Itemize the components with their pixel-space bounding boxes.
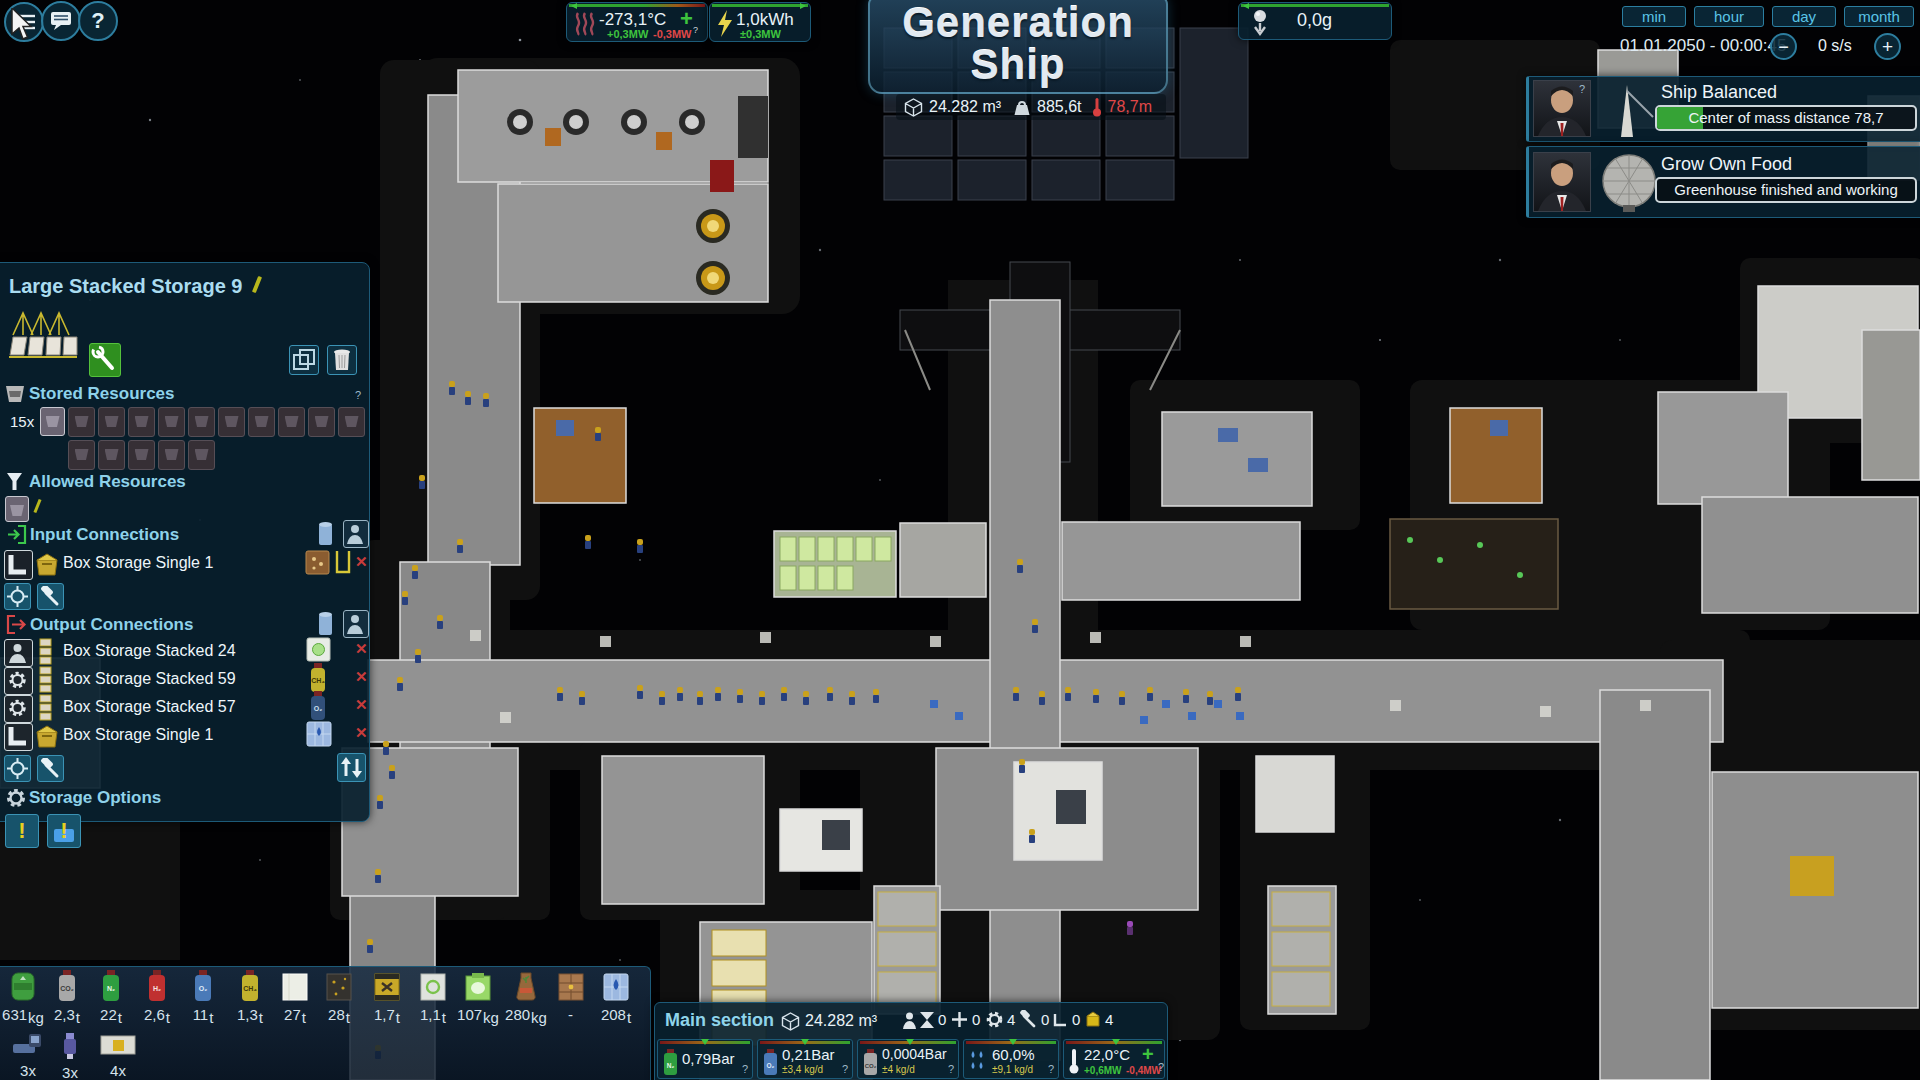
counter-crew: 0 bbox=[938, 1011, 946, 1028]
chat-icon bbox=[50, 11, 72, 31]
storage-slot[interactable] bbox=[158, 407, 185, 437]
stored-resources-header: Stored Resources bbox=[29, 384, 175, 404]
env-value: 60,0% bbox=[992, 1046, 1035, 1063]
resource-ch4[interactable]: CH₄ 1,3t bbox=[227, 970, 273, 1026]
speed-decrease-button[interactable]: − bbox=[1770, 33, 1797, 60]
resource-biomass[interactable]: 107kg bbox=[455, 970, 501, 1026]
storage-box-icon bbox=[1085, 1010, 1101, 1027]
pipe-cylinder-icon[interactable] bbox=[318, 521, 333, 547]
n2-bottle-icon: N₂ bbox=[662, 1049, 679, 1076]
notification-title: Grow Own Food bbox=[1661, 154, 1792, 175]
resource-unit: t bbox=[118, 1009, 122, 1026]
section-volume: 24.282 m³ bbox=[805, 1012, 877, 1030]
center-of-mass-progress: Center of mass distance 78,7 bbox=[1655, 105, 1917, 131]
resource-unit: t bbox=[346, 1009, 350, 1026]
minus-icon: − bbox=[1778, 38, 1789, 56]
storage-slot[interactable] bbox=[188, 440, 215, 470]
machine-count: 4x bbox=[94, 1062, 142, 1079]
output-connection-label[interactable]: Box Storage Stacked 24 bbox=[63, 642, 236, 660]
hammer-icon bbox=[1019, 1010, 1037, 1028]
env-co2-panel[interactable]: CO₂ 0,0004Bar ±4 kg/d ? bbox=[857, 1039, 959, 1079]
exclamation-icon: ! bbox=[60, 818, 67, 844]
storage-slot[interactable] bbox=[188, 407, 215, 437]
resource-unit: t bbox=[627, 1009, 631, 1026]
resource-amount: 22 bbox=[100, 1006, 117, 1023]
storage-detail-panel: Large Stacked Storage 9 Stored Resources… bbox=[0, 262, 370, 822]
machine-count-workstation[interactable]: 3x bbox=[6, 1032, 50, 1079]
main-section-panel: Main section 24.282 m³ 0 0 4 0 0 4 N₂ 0,… bbox=[654, 1002, 1168, 1080]
resource-amount: 1,3 bbox=[237, 1006, 258, 1023]
stacked-storage-mini-icon bbox=[38, 666, 53, 693]
plus-icon: + bbox=[1882, 37, 1893, 56]
gear-icon bbox=[985, 1010, 1004, 1029]
storage-options-header: Storage Options bbox=[29, 788, 161, 808]
env-gauge bbox=[760, 1041, 850, 1044]
bottle-label: H₂ bbox=[153, 985, 161, 992]
length-thermometer-icon bbox=[1092, 97, 1102, 117]
resource-co2[interactable]: CO₂ 2,3t bbox=[44, 970, 90, 1026]
volume-cube-icon bbox=[781, 1012, 800, 1031]
machine-count: 3x bbox=[52, 1064, 88, 1080]
env-delta: ±4 kg/d bbox=[882, 1064, 915, 1075]
machine-count-fabricator[interactable]: 4x bbox=[94, 1032, 142, 1079]
env-loss: -0,4MW bbox=[1126, 1065, 1161, 1076]
resource-ore[interactable]: 28t bbox=[316, 970, 362, 1026]
counter-corner: 0 bbox=[1072, 1011, 1080, 1028]
output-connections-icon bbox=[6, 614, 28, 635]
storage-slot[interactable] bbox=[68, 407, 95, 437]
bottle-label: CO₂ bbox=[60, 985, 74, 992]
mass-weight-icon bbox=[1013, 98, 1031, 117]
stacked-storage-mini-icon bbox=[38, 694, 53, 721]
energy-bolt-icon bbox=[716, 10, 734, 38]
output-connection-label[interactable]: Box Storage Stacked 57 bbox=[63, 698, 236, 716]
resource-amount: 208 bbox=[601, 1006, 626, 1023]
allowed-resources-header: Allowed Resources bbox=[29, 472, 186, 492]
resource-filter-icon[interactable] bbox=[305, 550, 330, 575]
machine-count: 3x bbox=[6, 1062, 50, 1079]
corner-icon bbox=[1053, 1012, 1068, 1027]
resource-amount: 11 bbox=[193, 1006, 209, 1023]
crew-carry-toggle[interactable] bbox=[343, 520, 369, 548]
resource-crate[interactable]: - bbox=[548, 970, 594, 1026]
output-row-type-icon[interactable] bbox=[4, 723, 33, 751]
allowed-resources-slot[interactable] bbox=[5, 496, 29, 522]
remove-output-connection[interactable]: ✕ bbox=[355, 668, 368, 686]
remove-output-connection[interactable]: ✕ bbox=[355, 696, 368, 714]
output-connection-label[interactable]: Box Storage Single 1 bbox=[63, 726, 213, 744]
storage-slot[interactable] bbox=[128, 407, 155, 437]
stored-count: 15x bbox=[10, 413, 34, 430]
rename-pencil-icon[interactable] bbox=[252, 276, 262, 293]
env-humidity-panel[interactable]: 60,0% ±9,1 kg/d ? bbox=[963, 1039, 1059, 1079]
add-connection-hammer-button[interactable] bbox=[37, 583, 64, 610]
deconstruct-button[interactable] bbox=[327, 345, 357, 375]
input-connections-icon bbox=[6, 524, 28, 545]
energy-gauge bbox=[712, 4, 808, 7]
notification-grow-own-food[interactable]: Grow Own Food Greenhouse finished and wo… bbox=[1526, 146, 1920, 218]
greenhouse-dome-icon bbox=[1599, 151, 1659, 213]
output-row-type-icon[interactable] bbox=[4, 667, 33, 695]
stored-slot-row1 bbox=[68, 407, 365, 437]
env-gauge bbox=[966, 1041, 1056, 1044]
allowed-edit-pencil-icon[interactable] bbox=[33, 499, 41, 513]
bottle-label: O₂ bbox=[199, 985, 208, 992]
storage-panel-title: Large Stacked Storage 9 bbox=[9, 275, 242, 298]
resource-amount: 107 bbox=[457, 1006, 482, 1023]
storage-slot[interactable] bbox=[308, 407, 335, 437]
copy-icon bbox=[293, 349, 315, 371]
temperature-gain: +0,3MW bbox=[607, 28, 648, 40]
ship-title-line2: Ship bbox=[870, 44, 1166, 86]
env-o2-panel[interactable]: O₂ 0,21Bar ±3,4 kg/d ? bbox=[757, 1039, 853, 1079]
resource-amount: 1,7 bbox=[374, 1006, 395, 1023]
storage-slot[interactable] bbox=[158, 440, 185, 470]
notification-detail: Center of mass distance 78,7 bbox=[1688, 109, 1883, 126]
env-value: 0,79Bar bbox=[682, 1050, 735, 1067]
svg-text:N₂: N₂ bbox=[667, 1062, 675, 1069]
resource-amount: - bbox=[568, 1006, 573, 1023]
greenhouse-progress: Greenhouse finished and working bbox=[1655, 177, 1917, 203]
output-row-type-icon[interactable] bbox=[4, 695, 33, 723]
storage-options-gear-icon bbox=[5, 787, 27, 809]
mass-cone-icon bbox=[1599, 81, 1655, 139]
trash-icon bbox=[333, 349, 351, 371]
output-connections-header: Output Connections bbox=[30, 615, 193, 635]
exclamation-icon: ! bbox=[18, 818, 25, 844]
output-connection-label[interactable]: Box Storage Stacked 59 bbox=[63, 670, 236, 688]
remove-output-connection[interactable]: ✕ bbox=[355, 724, 368, 742]
resource-unit: t bbox=[302, 1009, 306, 1026]
env-delta: ±9,1 kg/d bbox=[992, 1064, 1033, 1075]
o2-bottle-icon: O₂ bbox=[762, 1049, 779, 1076]
time-skip-min-button[interactable]: min bbox=[1622, 6, 1686, 27]
resource-amount: 1,1 bbox=[420, 1006, 441, 1023]
resource-food[interactable]: 631kg bbox=[0, 970, 46, 1026]
resource-amount: 28 bbox=[328, 1006, 345, 1023]
crate-thumb-icon bbox=[35, 724, 59, 748]
env-gain: +0,6MW bbox=[1084, 1065, 1122, 1076]
locate-target-button[interactable] bbox=[4, 583, 31, 610]
counter-cross: 0 bbox=[972, 1011, 980, 1028]
resource-amount: 2,6 bbox=[144, 1006, 165, 1023]
resource-amount: 631 bbox=[2, 1006, 27, 1023]
notification-detail: Greenhouse finished and working bbox=[1674, 181, 1897, 198]
storage-slot[interactable] bbox=[98, 407, 125, 437]
env-q: ? bbox=[1158, 1061, 1164, 1073]
notification-ship-balanced[interactable]: ? Ship Balanced Center of mass distance … bbox=[1526, 76, 1920, 142]
resource-unit: t bbox=[166, 1009, 170, 1026]
env-plus[interactable]: + bbox=[1142, 1043, 1154, 1066]
volume-cube-icon bbox=[904, 98, 923, 117]
resource-unit: t bbox=[396, 1009, 400, 1026]
ship-title-panel: Generation Ship bbox=[868, 0, 1168, 94]
storage-slot[interactable] bbox=[98, 440, 125, 470]
resource-unit: t bbox=[209, 1009, 213, 1026]
notification-q: ? bbox=[1579, 83, 1585, 95]
env-q: ? bbox=[842, 1063, 848, 1075]
ship-temperature-panel[interactable]: -273,1°C + +0,3MW -0,3MW ? bbox=[566, 2, 708, 42]
resource-unit: t bbox=[442, 1009, 446, 1026]
resource-filter-icon[interactable]: O₂ bbox=[309, 691, 327, 721]
humidity-drops-icon bbox=[968, 1049, 988, 1075]
resource-water-ice[interactable]: 208t bbox=[593, 970, 639, 1026]
stored-slot-row2 bbox=[68, 440, 215, 470]
input-connections-header: Input Connections bbox=[30, 525, 179, 545]
sort-connections-button[interactable] bbox=[337, 753, 366, 782]
env-gauge bbox=[660, 1041, 750, 1044]
resource-unit: t bbox=[76, 1009, 80, 1026]
priority-bracket-icon[interactable] bbox=[334, 549, 352, 575]
datetime-display: 01.01.2050 - 00:00:45 bbox=[1620, 36, 1786, 56]
time-skip-hour-button[interactable]: hour bbox=[1694, 6, 1764, 27]
gravity-gauge bbox=[1241, 4, 1389, 7]
remove-output-connection[interactable]: ✕ bbox=[355, 640, 368, 658]
resource-filter-icon[interactable] bbox=[306, 721, 332, 747]
stored-stack-slot[interactable] bbox=[40, 407, 65, 436]
resource-unit: kg bbox=[28, 1009, 44, 1026]
env-q: ? bbox=[1048, 1063, 1054, 1075]
heat-icon bbox=[574, 11, 596, 37]
temperature-value: -273,1°C bbox=[599, 10, 666, 30]
repair-wrench-button[interactable] bbox=[89, 343, 121, 377]
input-row-storage-icon[interactable] bbox=[4, 550, 33, 580]
game-viewport[interactable]: { "colors": {"accent_teal":"#2d7d9e","te… bbox=[0, 0, 1920, 1080]
gravity-panel[interactable]: 0,0g bbox=[1238, 2, 1392, 40]
crew-carry-toggle[interactable] bbox=[343, 610, 369, 638]
bottle-label: CH₄ bbox=[243, 985, 256, 992]
resource-seeds[interactable]: 280kg bbox=[503, 970, 549, 1026]
allowed-resources-funnel-icon bbox=[7, 473, 23, 492]
stacked-storage-mini-icon bbox=[38, 638, 53, 665]
bottle-label: N₂ bbox=[107, 985, 115, 992]
resource-parts[interactable]: 1,1t bbox=[410, 970, 456, 1026]
hourglass-icon bbox=[919, 1011, 935, 1029]
crate-thumb-icon bbox=[35, 552, 59, 576]
svg-text:CH₄: CH₄ bbox=[311, 677, 324, 684]
output-row-type-icon[interactable] bbox=[4, 639, 33, 667]
avatar bbox=[1533, 152, 1591, 212]
crew-icon bbox=[903, 1012, 916, 1029]
mouse-cursor bbox=[10, 8, 40, 44]
storage-slot[interactable] bbox=[248, 407, 275, 437]
game-speed: 0 s/s bbox=[1818, 37, 1852, 55]
temperature-q: ? bbox=[693, 25, 698, 35]
copy-settings-button[interactable] bbox=[289, 345, 319, 375]
resource-amount: 280 bbox=[505, 1006, 530, 1023]
help-button[interactable]: ? bbox=[78, 1, 118, 41]
notification-title: Ship Balanced bbox=[1661, 82, 1777, 103]
resource-unit: t bbox=[259, 1009, 263, 1026]
stored-resources-q[interactable]: ? bbox=[355, 389, 361, 401]
resource-tools[interactable]: 1,7t bbox=[364, 970, 410, 1026]
pipe-cylinder-icon[interactable] bbox=[318, 611, 333, 637]
resource-filter-icon[interactable] bbox=[306, 637, 331, 662]
remove-input-connection[interactable]: ✕ bbox=[355, 553, 368, 571]
ship-volume: 24.282 m³ bbox=[929, 98, 1001, 116]
env-value: 22,0°C bbox=[1084, 1046, 1130, 1063]
resource-filter-icon[interactable]: CH₄ bbox=[309, 663, 327, 693]
resource-n2[interactable]: N₂ 22t bbox=[88, 970, 134, 1026]
thermometer-icon bbox=[1069, 1048, 1079, 1075]
svg-text:CO₂: CO₂ bbox=[865, 1063, 877, 1069]
counter-gear: 4 bbox=[1007, 1011, 1015, 1028]
gravity-value: 0,0g bbox=[1297, 10, 1332, 31]
machine-count-pod[interactable]: 3x bbox=[52, 1032, 88, 1080]
priority-alert-button[interactable]: ! bbox=[5, 814, 39, 848]
help-label: ? bbox=[91, 8, 104, 34]
env-n2-panel[interactable]: N₂ 0,79Bar ? bbox=[657, 1039, 753, 1079]
ship-mass: 885,6t bbox=[1037, 98, 1081, 116]
storage-slot[interactable] bbox=[128, 440, 155, 470]
env-temperature-panel[interactable]: 22,0°C + +0,6MW -0,4MW ? bbox=[1063, 1039, 1165, 1079]
storage-slot[interactable] bbox=[338, 407, 365, 437]
resource-amount: 27 bbox=[284, 1006, 301, 1023]
resource-unit: kg bbox=[531, 1009, 547, 1026]
cross-icon bbox=[951, 1011, 968, 1028]
ship-title-line1: Generation bbox=[870, 2, 1166, 44]
storage-slot[interactable] bbox=[218, 407, 245, 437]
ship-stats-bar: 24.282 m³ 885,6t 78,7m bbox=[896, 94, 1166, 120]
resource-unit: kg bbox=[483, 1009, 499, 1026]
svg-text:O₂: O₂ bbox=[314, 705, 323, 712]
env-value: 0,0004Bar bbox=[882, 1046, 947, 1062]
resource-amount: 2,3 bbox=[54, 1006, 75, 1023]
env-value: 0,21Bar bbox=[782, 1046, 835, 1063]
energy-value: 1,0kWh bbox=[736, 10, 794, 30]
speed-increase-button[interactable]: + bbox=[1874, 33, 1901, 60]
storage-slot[interactable] bbox=[278, 407, 305, 437]
env-delta: ±3,4 kg/d bbox=[782, 1064, 823, 1075]
env-q: ? bbox=[948, 1063, 954, 1075]
ship-length: 78,7m bbox=[1108, 98, 1152, 116]
messages-button[interactable] bbox=[41, 1, 81, 41]
svg-text:O₂: O₂ bbox=[767, 1062, 775, 1069]
resource-h2[interactable]: H₂ 2,6t bbox=[134, 970, 180, 1026]
section-title[interactable]: Main section bbox=[665, 1010, 774, 1031]
env-gauge bbox=[860, 1041, 956, 1044]
priority-alert-fill-button[interactable]: ! bbox=[47, 814, 81, 848]
stored-resources-icon bbox=[5, 385, 25, 403]
temperature-loss: -0,3MW bbox=[653, 28, 692, 40]
counter-box: 4 bbox=[1105, 1011, 1113, 1028]
resource-o2[interactable]: O₂ 11t bbox=[180, 970, 226, 1026]
time-skip-month-button[interactable]: month bbox=[1844, 6, 1914, 27]
counter-hammer: 0 bbox=[1041, 1011, 1049, 1028]
gravity-icon bbox=[1251, 9, 1269, 37]
co2-bottle-icon: CO₂ bbox=[862, 1049, 879, 1076]
time-skip-day-button[interactable]: day bbox=[1772, 6, 1836, 27]
storage-thumbnail bbox=[7, 309, 79, 371]
energy-delta: ±0,3MW bbox=[740, 28, 781, 40]
input-connection-label[interactable]: Box Storage Single 1 bbox=[63, 554, 213, 572]
storage-slot[interactable] bbox=[68, 440, 95, 470]
ship-energy-panel[interactable]: 1,0kWh ±0,3MW bbox=[709, 2, 811, 42]
resource-ice[interactable]: 27t bbox=[272, 970, 318, 1026]
env-q: ? bbox=[742, 1063, 748, 1075]
add-connection-hammer-button[interactable] bbox=[37, 755, 64, 782]
locate-target-button[interactable] bbox=[4, 755, 31, 782]
